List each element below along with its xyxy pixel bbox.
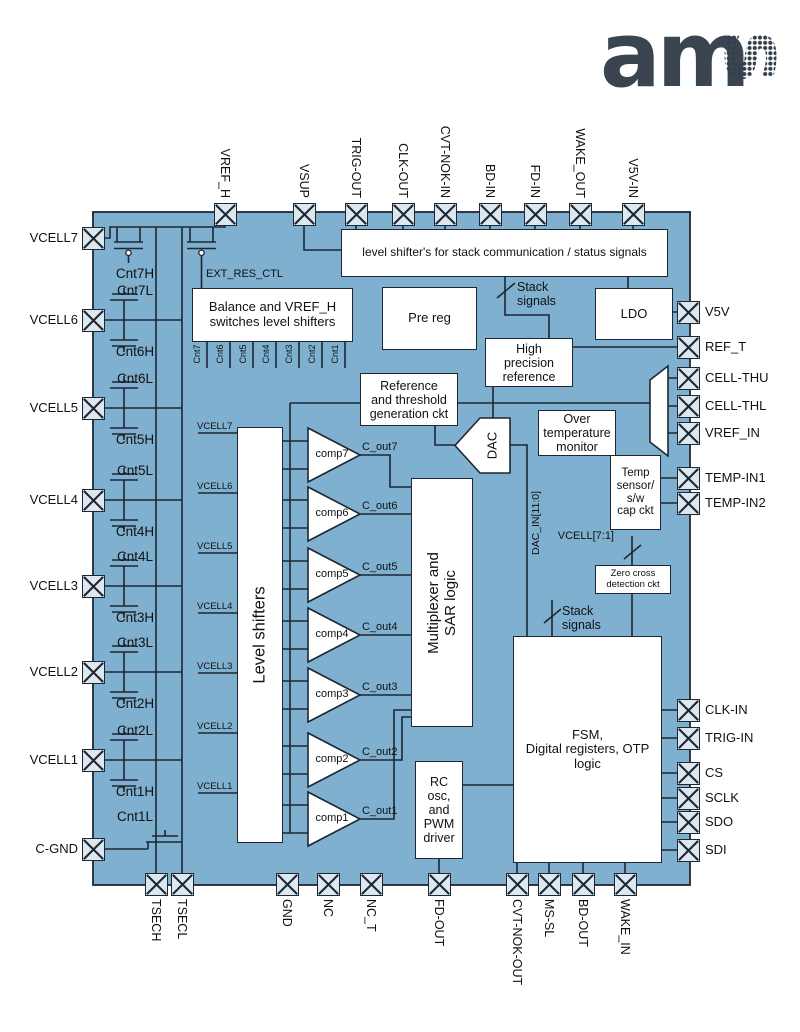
- pin-label-C-GND: C-GND: [8, 841, 78, 857]
- pin-VCELL6: [82, 309, 105, 332]
- pin-cross-icon: [277, 874, 298, 895]
- pin-label-GND: GND: [279, 899, 295, 1019]
- net-label-ext-res-ctl: EXT_RES_CTL: [206, 268, 283, 280]
- cnt-output-label-Cnt7: Cnt7: [190, 339, 204, 369]
- pin-TRIG-OUT: [345, 203, 368, 226]
- pin-label-CVT-NOK-IN: CVT-NOK-IN: [437, 88, 453, 198]
- cell-threshold-mux-shape: [650, 366, 668, 456]
- pin-label-WAKE_IN: WAKE_IN: [617, 899, 633, 1019]
- cnt-output-label-Cnt4: Cnt4: [259, 339, 273, 369]
- pin-TEMP-IN1: [677, 467, 700, 490]
- pin-cross-icon: [318, 874, 339, 895]
- pin-cross-icon: [539, 874, 560, 895]
- pmos-gate-bubble: [126, 250, 131, 255]
- pin-label-FD-OUT: FD-OUT: [431, 899, 447, 1019]
- pin-cross-icon: [429, 874, 450, 895]
- net-label-C_out6: C_out6: [362, 500, 397, 512]
- pin-label-VCELL7: VCELL7: [8, 230, 78, 246]
- pin-label-CVT-NOK-OUT: CVT-NOK-OUT: [509, 899, 525, 1019]
- pin-CVT-NOK-OUT: [506, 873, 529, 896]
- net-label-C_out5: C_out5: [362, 561, 397, 573]
- pin-cross-icon: [678, 728, 699, 749]
- pin-label-V5V-IN: V5V-IN: [625, 88, 641, 198]
- block-stack-level-shifters: level shifter's for stack communication …: [341, 229, 668, 277]
- pin-label-V5V: V5V: [705, 304, 800, 320]
- pin-TEMP-IN2: [677, 492, 700, 515]
- pin-label-TRIG-OUT: TRIG-OUT: [348, 88, 364, 198]
- pin-label-VCELL2: VCELL2: [8, 664, 78, 680]
- pin-cross-icon: [570, 204, 591, 225]
- pin-CS: [677, 762, 700, 785]
- pin-cross-icon: [83, 398, 104, 419]
- pin-SDO: [677, 811, 700, 834]
- net-label-stack-signals-bottom: Stack signals: [562, 604, 601, 632]
- pin-TSECL: [171, 873, 194, 896]
- net-label-dac-in: DAC_IN[11:0]: [528, 478, 544, 568]
- block-reference-threshold-generation: Reference and threshold generation ckt: [360, 373, 458, 426]
- pin-CLK-IN: [677, 699, 700, 722]
- switch-label-Cnt1H: Cnt1H: [104, 784, 166, 799]
- net-label-C_out7: C_out7: [362, 441, 397, 453]
- block-zero-cross-detection: Zero cross detection ckt: [595, 565, 671, 594]
- vcell-input-label-VCELL6: VCELL6: [197, 481, 232, 492]
- comparator-label-comp7: comp7: [311, 448, 353, 460]
- switch-label-Cnt7H: Cnt7H: [104, 266, 166, 281]
- switch-label-Cnt5H: Cnt5H: [104, 432, 166, 447]
- pin-cross-icon: [615, 874, 636, 895]
- pin-FD-IN: [524, 203, 547, 226]
- pin-V5V: [677, 301, 700, 324]
- pin-cross-icon: [507, 874, 528, 895]
- pin-cross-icon: [678, 700, 699, 721]
- pin-VCELL2: [82, 661, 105, 684]
- switch-label-Cnt2L: Cnt2L: [104, 723, 166, 738]
- vcell-input-label-VCELL2: VCELL2: [197, 721, 232, 732]
- pin-cross-icon: [83, 662, 104, 683]
- pin-label-TEMP-IN1: TEMP-IN1: [705, 470, 800, 486]
- pin-label-TRIG-IN: TRIG-IN: [705, 730, 800, 746]
- pin-TSECH: [145, 873, 168, 896]
- pin-SCLK: [677, 787, 700, 810]
- pin-label-VCELL6: VCELL6: [8, 312, 78, 328]
- net-label-stack-signals-top: Stack signals: [517, 280, 556, 308]
- pin-VCELL7: [82, 227, 105, 250]
- pin-label-CLK-IN: CLK-IN: [705, 702, 800, 718]
- pin-cross-icon: [393, 204, 414, 225]
- pin-label-BD-OUT: BD-OUT: [575, 899, 591, 1019]
- switch-label-Cnt6L: Cnt6L: [104, 371, 166, 386]
- pin-cross-icon: [678, 468, 699, 489]
- pin-label-VSUP: VSUP: [296, 88, 312, 198]
- pin-cross-icon: [678, 423, 699, 444]
- cnt-output-label-Cnt6: Cnt6: [213, 339, 227, 369]
- pin-BD-IN: [479, 203, 502, 226]
- pin-label-VREF_IN: VREF_IN: [705, 425, 800, 441]
- block-diagram-page: am s: [0, 0, 800, 1032]
- pin-label-NC: NC: [320, 899, 336, 1019]
- pin-cross-icon: [435, 204, 456, 225]
- pin-VREF_IN: [677, 422, 700, 445]
- vcell-input-label-VCELL4: VCELL4: [197, 601, 232, 612]
- block-level-shifters-label: Level shifters: [251, 427, 270, 843]
- switch-label-Cnt5L: Cnt5L: [104, 463, 166, 478]
- pin-cross-icon: [83, 228, 104, 249]
- pin-VCELL3: [82, 575, 105, 598]
- block-multiplexer-sar-logic-label: Multiplexer and SAR logic: [425, 478, 460, 727]
- pin-label-CLK-OUT: CLK-OUT: [395, 88, 411, 198]
- pin-label-SDI: SDI: [705, 842, 800, 858]
- pin-V5V-IN: [622, 203, 645, 226]
- net-label-C_out4: C_out4: [362, 621, 397, 633]
- cnt-output-label-Cnt3: Cnt3: [282, 339, 296, 369]
- pin-label-VCELL1: VCELL1: [8, 752, 78, 768]
- block-multiplexer-sar-logic: Multiplexer and SAR logic: [411, 478, 473, 727]
- pin-cross-icon: [678, 337, 699, 358]
- block-balance-switch-level-shifters: Balance and VREF_H switches level shifte…: [192, 288, 353, 342]
- pin-cross-icon: [83, 490, 104, 511]
- cnt-output-label-Cnt1: Cnt1: [328, 339, 342, 369]
- pin-label-MS-SL: MS-SL: [541, 899, 557, 1019]
- pin-WAKE_OUT: [569, 203, 592, 226]
- block-temp-sensor: Temp sensor/ s/w cap ckt: [610, 455, 661, 530]
- block-over-temperature-monitor: Over temperature monitor: [538, 410, 616, 456]
- comparator-label-comp3: comp3: [311, 688, 353, 700]
- pin-cross-icon: [678, 368, 699, 389]
- pin-FD-OUT: [428, 873, 451, 896]
- switch-label-Cnt2H: Cnt2H: [104, 696, 166, 711]
- pin-BD-OUT: [572, 873, 595, 896]
- vcell-input-label-VCELL3: VCELL3: [197, 661, 232, 672]
- cnt-output-label-Cnt2: Cnt2: [305, 339, 319, 369]
- block-pre-reg: Pre reg: [382, 287, 477, 350]
- pin-CELL-THU: [677, 367, 700, 390]
- pin-WAKE_IN: [614, 873, 637, 896]
- pin-C-GND: [82, 838, 105, 861]
- pin-cross-icon: [678, 788, 699, 809]
- net-label-C_out1: C_out1: [362, 805, 397, 817]
- pin-label-FD-IN: FD-IN: [527, 88, 543, 198]
- pin-cross-icon: [678, 493, 699, 514]
- pin-VCELL4: [82, 489, 105, 512]
- pin-label-VCELL3: VCELL3: [8, 578, 78, 594]
- pin-VCELL1: [82, 749, 105, 772]
- pin-cross-icon: [573, 874, 594, 895]
- pin-cross-icon: [83, 750, 104, 771]
- pin-GND: [276, 873, 299, 896]
- pin-label-TSECH: TSECH: [148, 899, 164, 1019]
- pin-label-VCELL4: VCELL4: [8, 492, 78, 508]
- pin-TRIG-IN: [677, 727, 700, 750]
- pin-label-VCELL5: VCELL5: [8, 400, 78, 416]
- pin-CVT-NOK-IN: [434, 203, 457, 226]
- pin-label-VREF_H: VREF_H: [217, 88, 233, 198]
- pin-cross-icon: [83, 576, 104, 597]
- pin-CLK-OUT: [392, 203, 415, 226]
- pin-cross-icon: [678, 812, 699, 833]
- pin-NC: [317, 873, 340, 896]
- pin-label-NC_T: NC_T: [363, 899, 379, 1019]
- switch-label-Cnt6H: Cnt6H: [104, 344, 166, 359]
- pin-VREF_H: [214, 203, 237, 226]
- pin-cross-icon: [678, 763, 699, 784]
- pin-CELL-THL: [677, 395, 700, 418]
- pin-cross-icon: [361, 874, 382, 895]
- block-rc-osc-pwm-driver: RC osc, and PWM driver: [415, 761, 463, 859]
- pin-VSUP: [293, 203, 316, 226]
- pin-label-SDO: SDO: [705, 814, 800, 830]
- vcell-input-label-VCELL7: VCELL7: [197, 421, 232, 432]
- switch-label-Cnt4H: Cnt4H: [104, 524, 166, 539]
- pin-cross-icon: [346, 204, 367, 225]
- pin-label-SCLK: SCLK: [705, 790, 800, 806]
- comparator-label-comp6: comp6: [311, 507, 353, 519]
- block-level-shifters: Level shifters: [237, 427, 283, 843]
- pin-cross-icon: [623, 204, 644, 225]
- comparator-label-comp4: comp4: [311, 628, 353, 640]
- pin-cross-icon: [525, 204, 546, 225]
- pin-NC_T: [360, 873, 383, 896]
- net-label-C_out3: C_out3: [362, 681, 397, 693]
- pin-label-WAKE_OUT: WAKE_OUT: [572, 88, 588, 198]
- pmos-gate-bubble: [199, 250, 204, 255]
- switch-label-Cnt3L: Cnt3L: [104, 635, 166, 650]
- block-high-precision-reference: High precision reference: [485, 338, 573, 387]
- pin-MS-SL: [538, 873, 561, 896]
- pin-cross-icon: [83, 839, 104, 860]
- net-label-vcell-bus: VCELL[7:1]: [550, 530, 614, 542]
- pin-VCELL5: [82, 397, 105, 420]
- pin-label-BD-IN: BD-IN: [482, 88, 498, 198]
- pin-label-CELL-THU: CELL-THU: [705, 370, 800, 386]
- pin-cross-icon: [678, 396, 699, 417]
- switch-label-Cnt4L: Cnt4L: [104, 549, 166, 564]
- pin-label-TEMP-IN2: TEMP-IN2: [705, 495, 800, 511]
- block-fsm-digital-registers-otp: FSM, Digital registers, OTP logic: [513, 636, 662, 863]
- switch-label-Cnt1L: Cnt1L: [104, 809, 166, 824]
- pin-label-REF_T: REF_T: [705, 339, 800, 355]
- pin-SDI: [677, 839, 700, 862]
- block-ldo: LDO: [595, 288, 673, 340]
- comparator-label-comp1: comp1: [311, 812, 353, 824]
- vcell-input-label-VCELL5: VCELL5: [197, 541, 232, 552]
- pin-cross-icon: [215, 204, 236, 225]
- switch-label-Cnt3H: Cnt3H: [104, 610, 166, 625]
- cnt-output-label-Cnt5: Cnt5: [236, 339, 250, 369]
- pin-cross-icon: [146, 874, 167, 895]
- pin-label-CELL-THL: CELL-THL: [705, 398, 800, 414]
- pin-cross-icon: [480, 204, 501, 225]
- pin-label-TSECL: TSECL: [174, 899, 190, 1019]
- comparator-label-comp2: comp2: [311, 753, 353, 765]
- pin-REF_T: [677, 336, 700, 359]
- net-label-C_out2: C_out2: [362, 746, 397, 758]
- pin-cross-icon: [83, 310, 104, 331]
- switch-label-Cnt7L: Cnt7L: [104, 283, 166, 298]
- pin-cross-icon: [172, 874, 193, 895]
- comparator-label-comp5: comp5: [311, 568, 353, 580]
- vcell-input-label-VCELL1: VCELL1: [197, 781, 232, 792]
- pin-cross-icon: [294, 204, 315, 225]
- pin-cross-icon: [678, 840, 699, 861]
- pin-cross-icon: [678, 302, 699, 323]
- dac-label: DAC: [484, 424, 501, 468]
- pin-label-CS: CS: [705, 765, 800, 781]
